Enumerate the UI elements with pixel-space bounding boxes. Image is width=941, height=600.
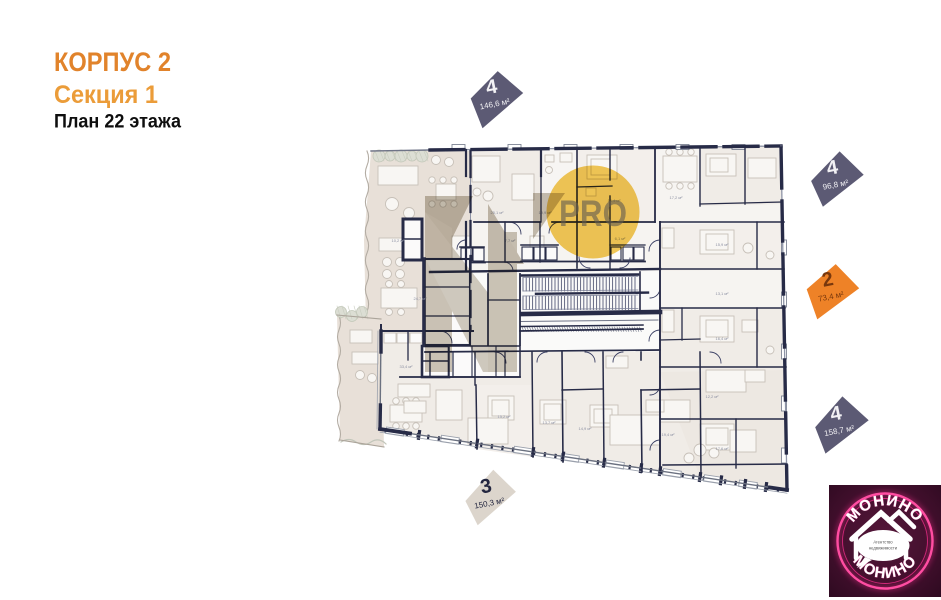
svg-text:15,9 м²: 15,9 м² (716, 242, 730, 247)
svg-text:33,4 м²: 33,4 м² (400, 364, 414, 369)
svg-text:15,2 м²: 15,2 м² (498, 414, 512, 419)
svg-text:12,2 м²: 12,2 м² (706, 394, 720, 399)
svg-text:13,1 м²: 13,1 м² (716, 291, 730, 296)
svg-text:недвижимости: недвижимости (869, 546, 898, 551)
svg-text:PRO: PRO (559, 193, 627, 234)
svg-text:План 22 этажа: План 22 этажа (54, 112, 181, 133)
svg-text:КОРПУС 2: КОРПУС 2 (54, 47, 171, 77)
svg-text:10,2 м²: 10,2 м² (392, 238, 406, 243)
svg-text:16,4 м²: 16,4 м² (716, 336, 730, 341)
svg-text:Секция 1: Секция 1 (54, 81, 158, 109)
svg-text:13,7 м²: 13,7 м² (543, 420, 557, 425)
svg-text:14,9 м²: 14,9 м² (579, 426, 593, 431)
svg-text:19,4 м²: 19,4 м² (662, 432, 676, 437)
svg-text:17,2 м²: 17,2 м² (670, 195, 684, 200)
svg-text:17,6 м²: 17,6 м² (716, 446, 730, 451)
svg-text:Агентство: Агентство (873, 540, 893, 545)
